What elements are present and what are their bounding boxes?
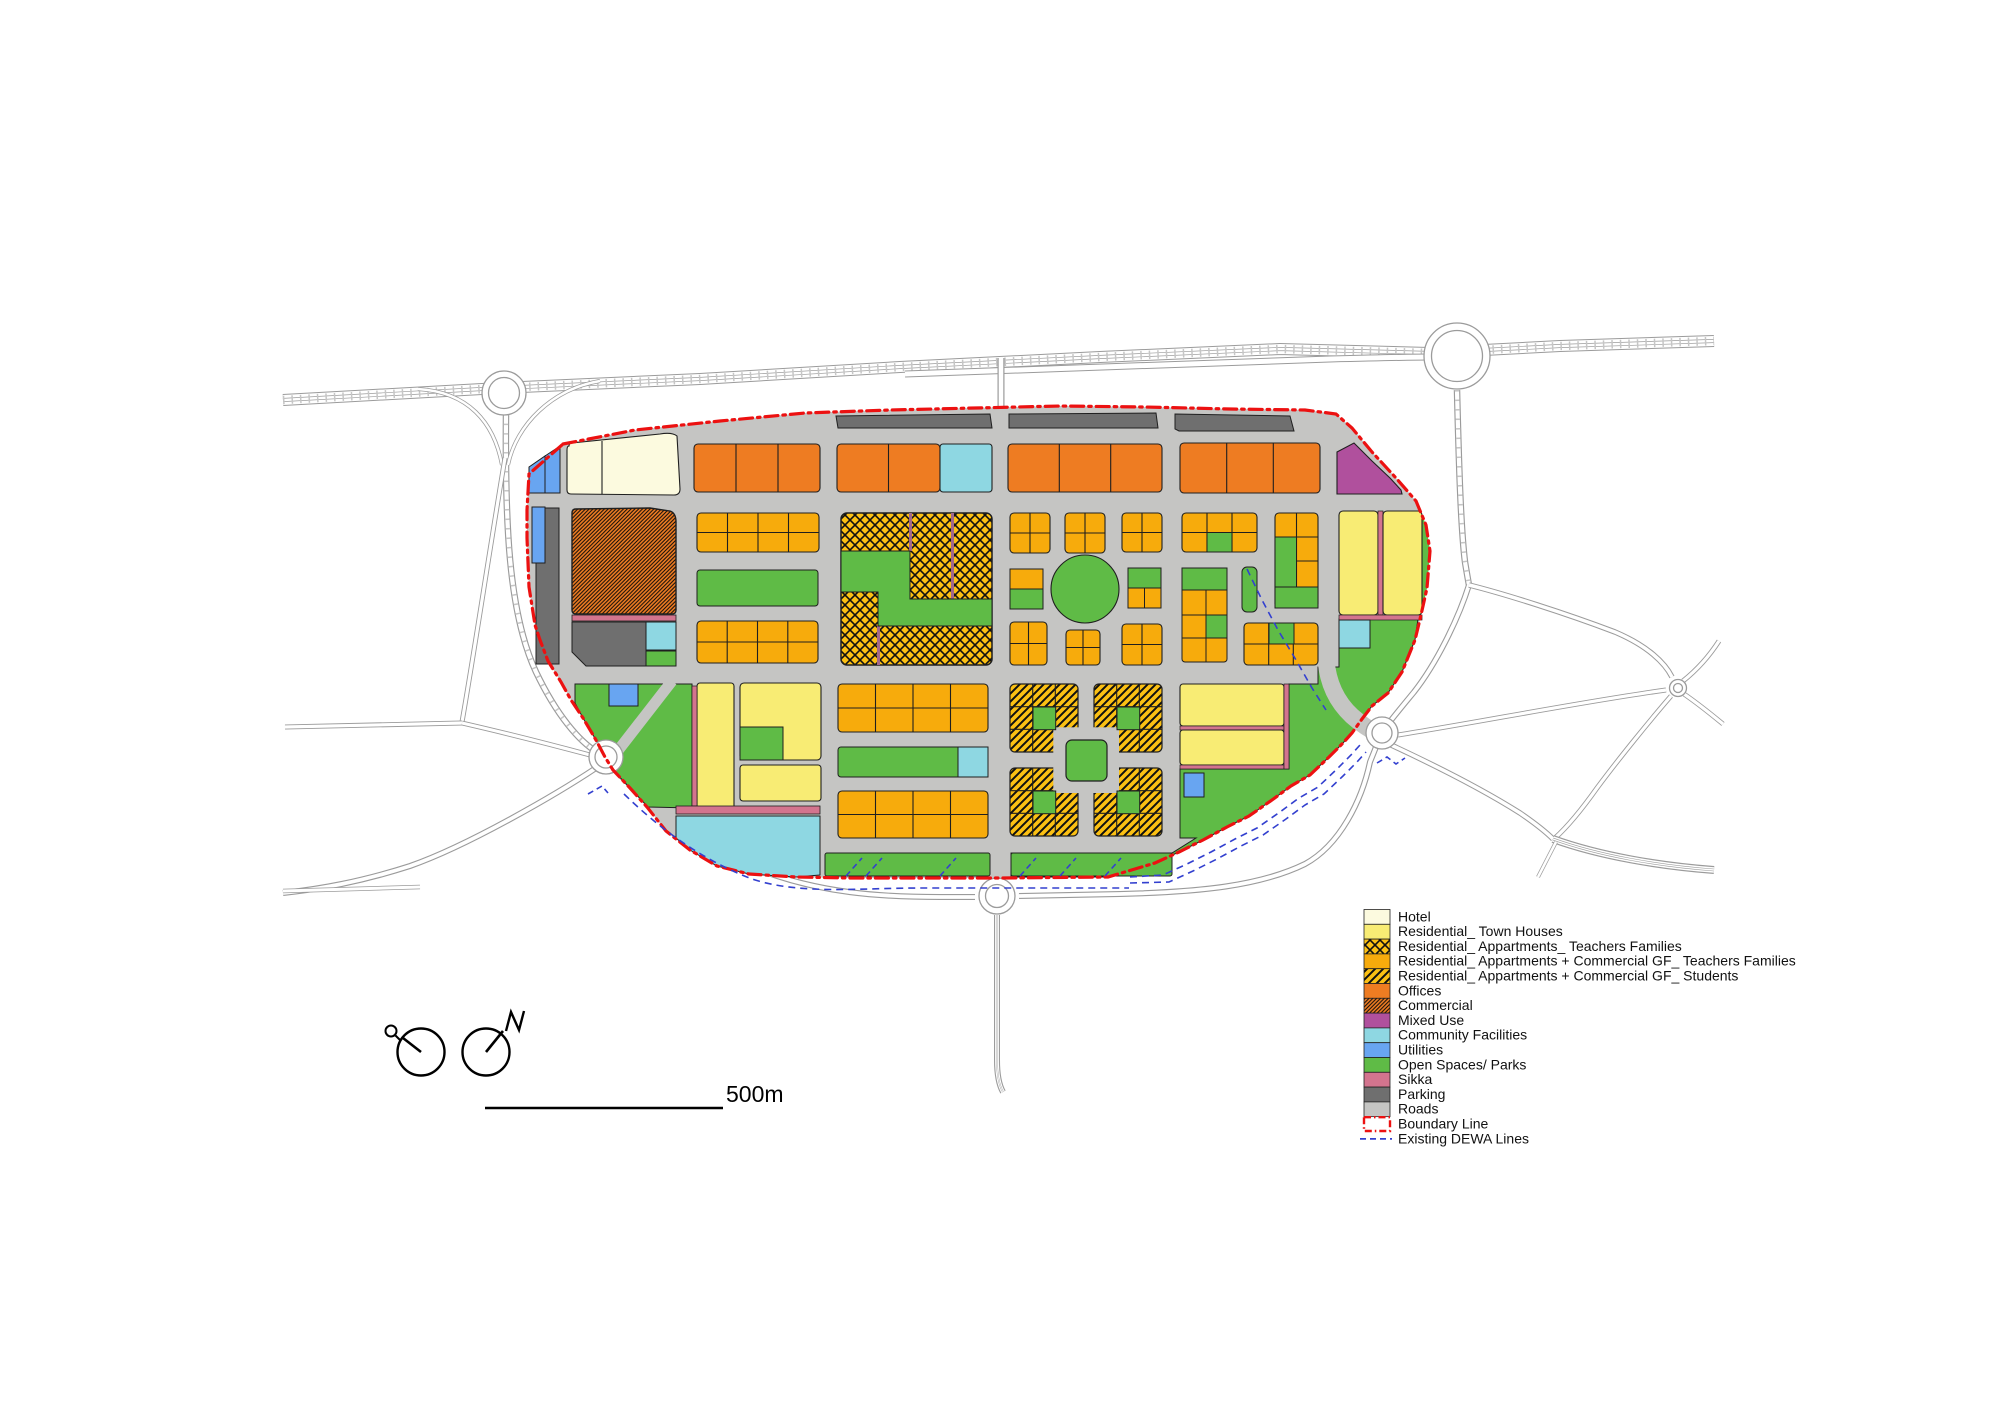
svg-text:Residential_ Appartments + Com: Residential_ Appartments + Commercial GF… <box>1398 968 1738 984</box>
svg-text:Hotel: Hotel <box>1398 908 1431 924</box>
svg-text:500m: 500m <box>726 1081 784 1107</box>
svg-text:Commercial: Commercial <box>1398 997 1473 1013</box>
svg-text:Utilities: Utilities <box>1398 1042 1443 1058</box>
svg-text:Sikka: Sikka <box>1398 1071 1432 1087</box>
svg-text:Mixed Use: Mixed Use <box>1398 1012 1464 1028</box>
svg-text:Community Facilities: Community Facilities <box>1398 1027 1527 1043</box>
svg-text:Open Spaces/ Parks: Open Spaces/ Parks <box>1398 1056 1526 1072</box>
svg-text:Roads: Roads <box>1398 1101 1438 1117</box>
svg-text:Offices: Offices <box>1398 982 1441 998</box>
svg-text:Existing DEWA Lines: Existing DEWA Lines <box>1398 1130 1529 1146</box>
svg-text:Residential_ Appartments + Com: Residential_ Appartments + Commercial GF… <box>1398 953 1796 969</box>
svg-text:Boundary Line: Boundary Line <box>1398 1116 1489 1132</box>
svg-text:Parking: Parking <box>1398 1086 1445 1102</box>
svg-text:Residential_ Town Houses: Residential_ Town Houses <box>1398 923 1563 939</box>
svg-text:Residential_ Appartments_ Teac: Residential_ Appartments_ Teachers Famil… <box>1398 938 1682 954</box>
